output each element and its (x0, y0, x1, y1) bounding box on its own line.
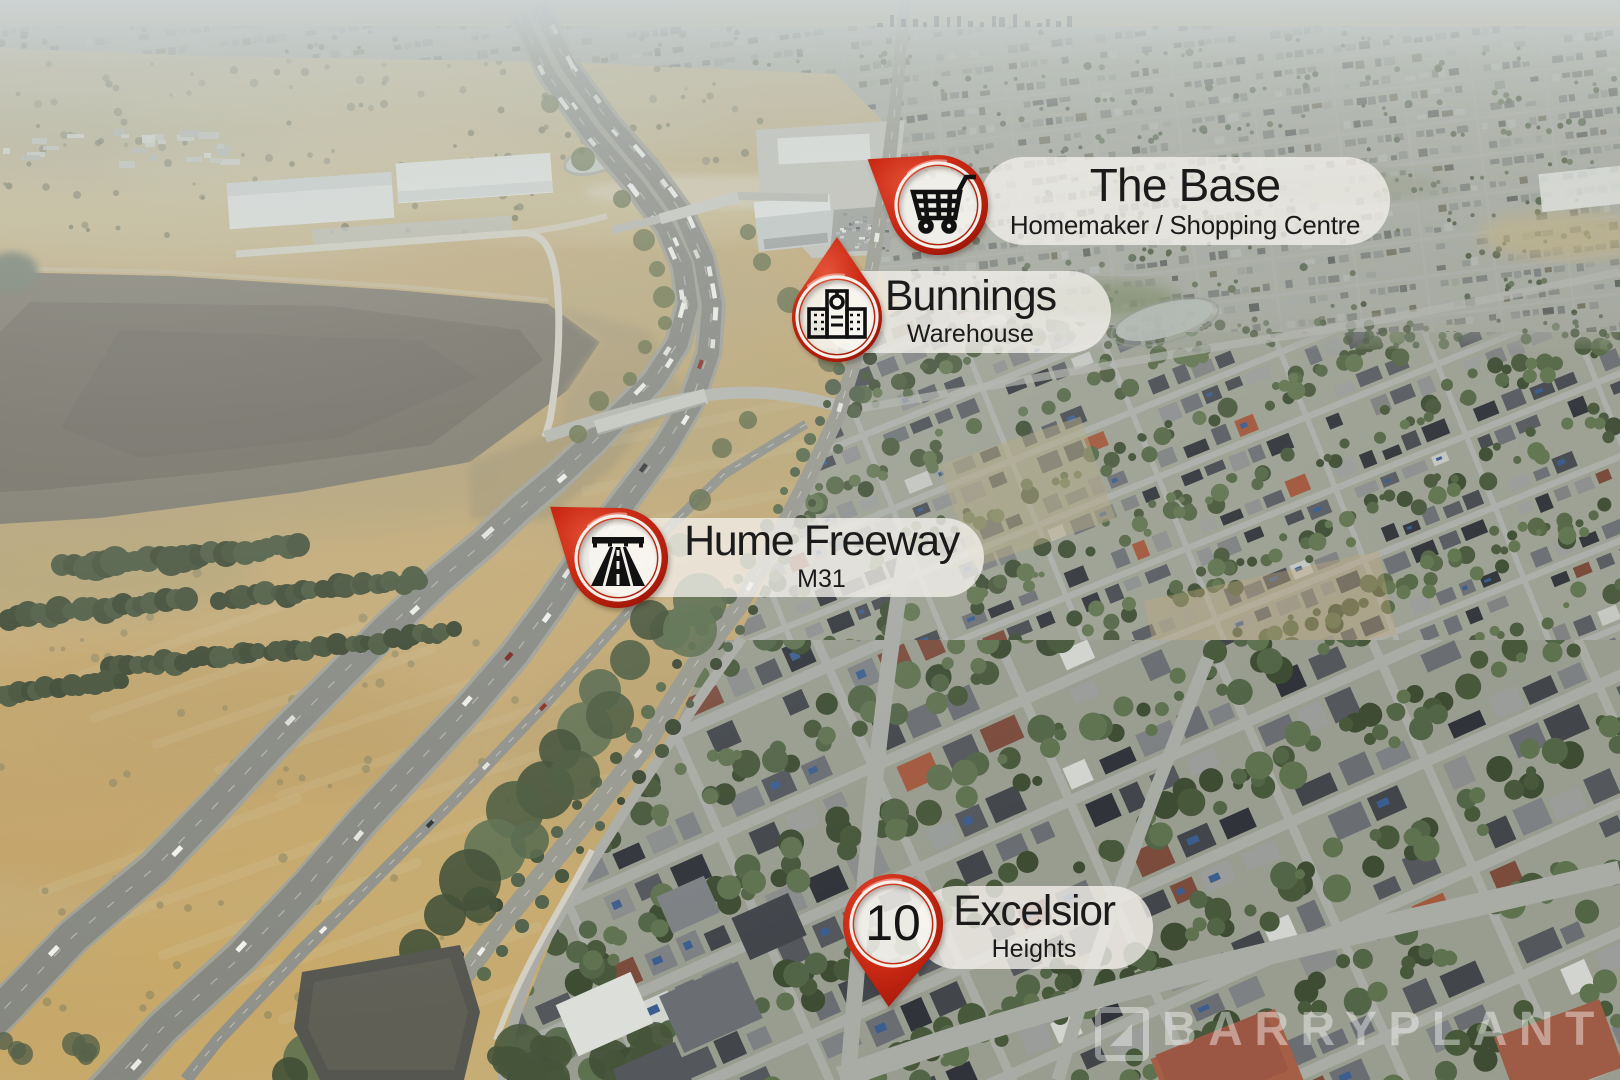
svg-text:10: 10 (865, 895, 921, 951)
svg-text:BARRYPLANT: BARRYPLANT (1162, 1003, 1606, 1056)
